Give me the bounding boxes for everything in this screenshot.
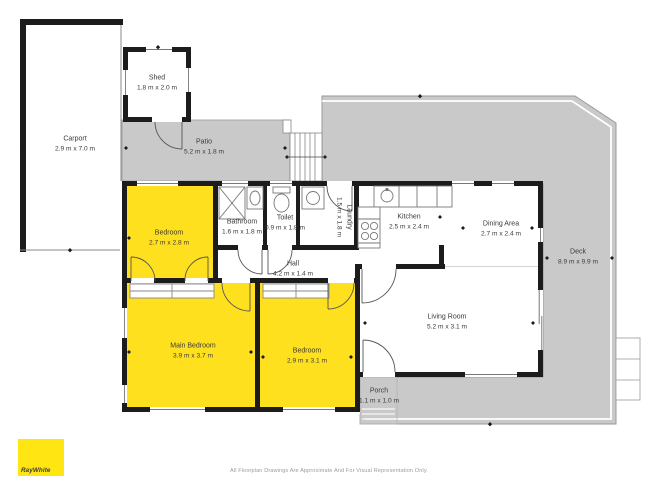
room-label-bathroom: Bathroom 1.6 m x 1.8 m <box>222 218 262 237</box>
shower <box>219 187 245 219</box>
room-label-main-bedroom: Main Bedroom 3.9 m x 3.7 m <box>170 342 216 361</box>
deck-steps <box>616 338 640 400</box>
laundry-tub <box>302 187 324 209</box>
toilet-fixture <box>273 187 290 212</box>
room-label-porch: Porch 1.1 m x 1.0 m <box>359 387 399 406</box>
room-label-bedroom2: Bedroom 2.9 m x 3.1 m <box>287 347 327 366</box>
floorplan-canvas: Carport 2.9 m x 7.0 m Shed 1.8 m x 2.0 m… <box>0 0 658 493</box>
floorplan-drawing <box>0 0 658 493</box>
room-label-living: Living Room 5.2 m x 3.1 m <box>427 313 467 332</box>
outdoor-stairs <box>283 120 327 181</box>
room-label-laundry: Laundry 1.5 m x 1.8 m <box>335 197 354 237</box>
room-label-dining: Dining Area 2.7 m x 2.4 m <box>481 220 521 239</box>
raywhite-logo: RayWhite <box>18 439 64 476</box>
kitchen-bench <box>374 186 452 207</box>
room-label-carport: Carport 2.9 m x 7.0 m <box>55 135 95 154</box>
kitchen-cooktop <box>358 207 380 248</box>
raywhite-logo-text: RayWhite <box>21 467 51 474</box>
room-label-hall: Hall 4.2 m x 1.4 m <box>273 260 313 279</box>
room-label-kitchen: Kitchen 2.5 m x 2.4 m <box>389 213 429 232</box>
bedroom2-fill <box>260 283 355 407</box>
kitchen-sink <box>381 190 393 202</box>
room-label-shed: Shed 1.8 m x 2.0 m <box>137 74 177 93</box>
room-label-patio: Patio 5.2 m x 1.8 m <box>184 138 224 157</box>
room-label-bedroom1: Bedroom 2.7 m x 2.8 m <box>149 229 189 248</box>
bathroom-sink <box>247 187 263 209</box>
room-label-toilet: Toilet 0.9 m x 1.8 m <box>265 214 305 233</box>
room-label-deck: Deck 8.9 m x 9.9 m <box>558 248 598 267</box>
disclaimer-text: All Floorplan Drawings Are Approximate A… <box>230 468 428 474</box>
